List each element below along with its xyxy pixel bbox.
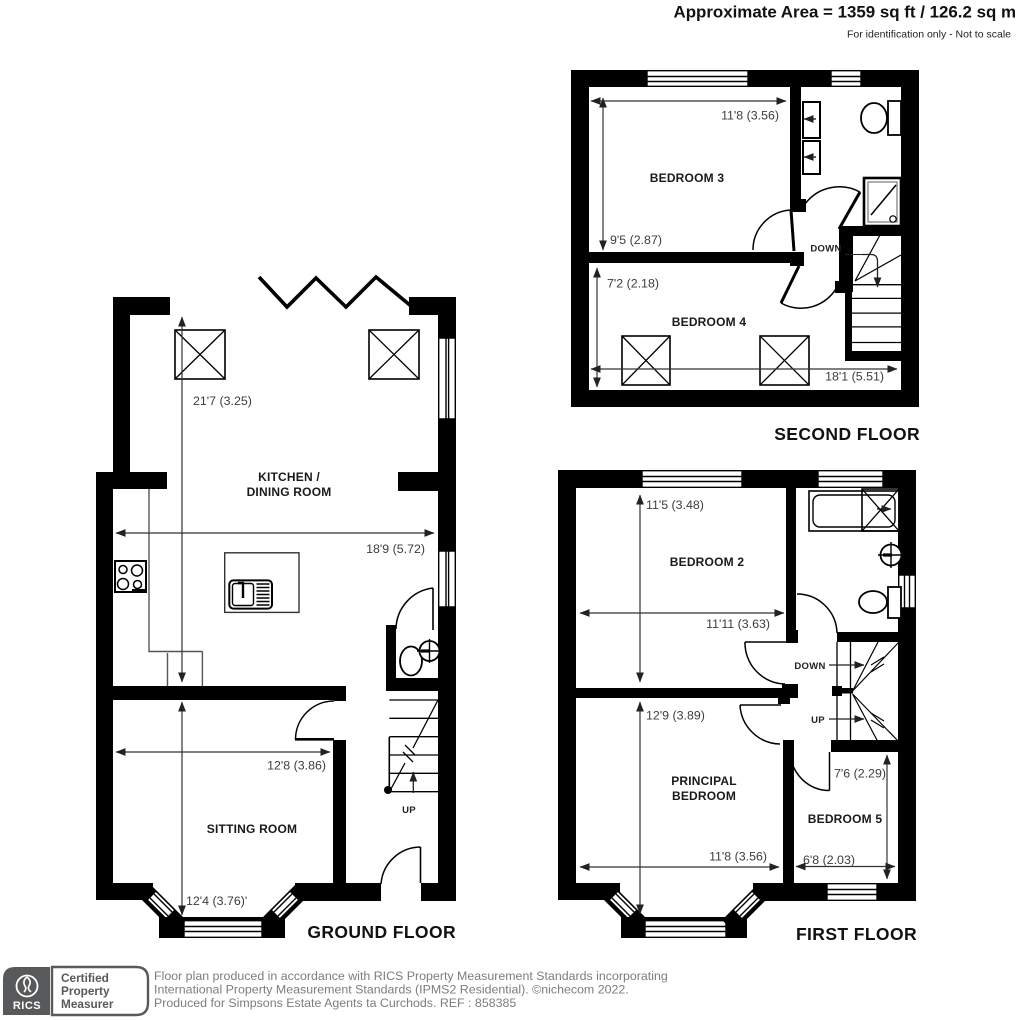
svg-text:11'8 (3.56): 11'8 (3.56) — [709, 850, 767, 864]
svg-text:11'5 (3.48): 11'5 (3.48) — [646, 498, 704, 512]
svg-text:SITTING ROOM: SITTING ROOM — [207, 822, 297, 836]
svg-text:FIRST FLOOR: FIRST FLOOR — [796, 924, 917, 944]
svg-text:SECOND FLOOR: SECOND FLOOR — [774, 424, 920, 444]
svg-text:UP: UP — [811, 715, 825, 726]
svg-text:UP: UP — [402, 805, 416, 816]
svg-text:12'4 (3.76)': 12'4 (3.76)' — [186, 894, 247, 908]
svg-text:DOWN: DOWN — [794, 661, 825, 672]
svg-text:Measurer: Measurer — [61, 997, 114, 1011]
svg-text:DINING ROOM: DINING ROOM — [247, 485, 332, 499]
svg-text:DOWN: DOWN — [810, 244, 841, 255]
svg-text:9'5 (2.87): 9'5 (2.87) — [610, 233, 662, 247]
svg-text:Property: Property — [61, 984, 110, 998]
svg-text:BEDROOM 5: BEDROOM 5 — [808, 812, 883, 826]
svg-text:18'1 (5.51): 18'1 (5.51) — [825, 370, 884, 384]
svg-text:7'2 (2.18): 7'2 (2.18) — [607, 277, 659, 291]
svg-text:Certified: Certified — [61, 971, 109, 985]
svg-text:PRINCIPAL: PRINCIPAL — [671, 774, 737, 788]
svg-text:21'7 (3.25): 21'7 (3.25) — [193, 394, 252, 408]
svg-text:11'8 (3.56): 11'8 (3.56) — [721, 109, 779, 123]
svg-text:Approximate Area = 1359 sq ft: Approximate Area = 1359 sq ft / 126.2 sq… — [674, 3, 1017, 22]
svg-text:International Property Measure: International Property Measurement Stand… — [154, 983, 629, 997]
svg-text:RICS: RICS — [13, 1000, 41, 1012]
svg-text:Produced for Simpsons Estate A: Produced for Simpsons Estate Agents ta C… — [154, 996, 516, 1010]
svg-text:12'8 (3.86): 12'8 (3.86) — [267, 759, 326, 773]
svg-text:For identification only - Not: For identification only - Not to scale — [847, 29, 1011, 41]
svg-text:BEDROOM 2: BEDROOM 2 — [670, 555, 745, 569]
svg-text:GROUND FLOOR: GROUND FLOOR — [307, 922, 456, 942]
svg-text:BEDROOM 4: BEDROOM 4 — [672, 315, 747, 329]
svg-text:18'9 (5.72): 18'9 (5.72) — [366, 542, 425, 556]
svg-text:BEDROOM 3: BEDROOM 3 — [650, 171, 725, 185]
svg-text:BEDROOM: BEDROOM — [672, 789, 736, 803]
svg-text:6'8 (2.03): 6'8 (2.03) — [803, 853, 855, 867]
svg-text:7'6 (2.29): 7'6 (2.29) — [834, 767, 886, 781]
svg-text:Floor plan produced in accorda: Floor plan produced in accordance with R… — [154, 969, 668, 983]
svg-text:11'11 (3.63): 11'11 (3.63) — [706, 617, 770, 631]
svg-text:12'9 (3.89): 12'9 (3.89) — [646, 709, 705, 723]
svg-text:KITCHEN /: KITCHEN / — [258, 470, 320, 484]
